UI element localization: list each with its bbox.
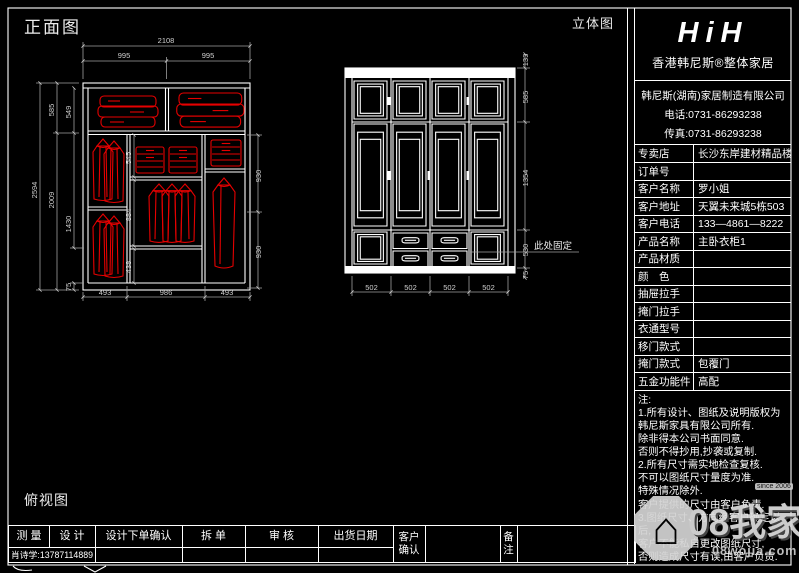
dimension-label: 502 — [404, 283, 417, 292]
fixed-here-note: 此处固定 — [534, 240, 573, 252]
dimension-label: 986 — [160, 288, 173, 297]
dimension-label: 995 — [202, 51, 215, 60]
watermark-site-url: 08wojia.com — [712, 544, 797, 558]
dimension-label: 995 — [118, 51, 131, 60]
dimension-label: 75 — [64, 283, 73, 291]
elevation-doors — [354, 81, 504, 267]
dimension-label: 930 — [254, 170, 263, 183]
door-handle — [467, 97, 470, 105]
dimension-label: 133 — [521, 54, 530, 67]
dimension-label: 502 — [482, 283, 495, 292]
watermark-brand-text: 08我家 — [688, 492, 799, 546]
dimension-label: 549 — [64, 106, 73, 119]
dimension-label: 2009 — [47, 192, 56, 209]
top-view-partial-sketch — [13, 566, 106, 572]
watermark-since-badge: since 2006 — [755, 483, 793, 490]
dimension-label: 1354 — [521, 170, 530, 187]
dimension-label: 493 — [99, 288, 112, 297]
door-handle — [428, 171, 431, 180]
door-handle — [388, 97, 391, 105]
dimension-label: 502 — [443, 283, 456, 292]
dimension-label: 930 — [254, 246, 263, 259]
dimension-label: 1430 — [64, 216, 73, 233]
dimension-label: 493 — [221, 288, 234, 297]
dimension-label: 2594 — [30, 182, 39, 199]
dimension-label: 545 — [124, 152, 133, 165]
door-handle — [467, 171, 470, 180]
dimension-label: 2108 — [158, 36, 175, 45]
dimension-label: 585 — [521, 91, 530, 104]
dimension-label: 438 — [124, 261, 133, 274]
cad-sheet: { "labels": { "front_view": "正面图", "pers… — [0, 0, 799, 573]
watermark: since 2006 ⌂ 08我家 08wojia.com — [628, 476, 799, 573]
dimension-label: 585 — [47, 104, 56, 117]
door-handle — [388, 171, 391, 180]
house-icon: ⌂ — [652, 505, 680, 551]
dimension-label: 530 — [521, 244, 530, 257]
dimension-label: 884 — [124, 209, 133, 222]
dimension-label: 75 — [521, 271, 530, 279]
dimension-label: 502 — [365, 283, 378, 292]
elevation-carcass — [345, 68, 515, 273]
